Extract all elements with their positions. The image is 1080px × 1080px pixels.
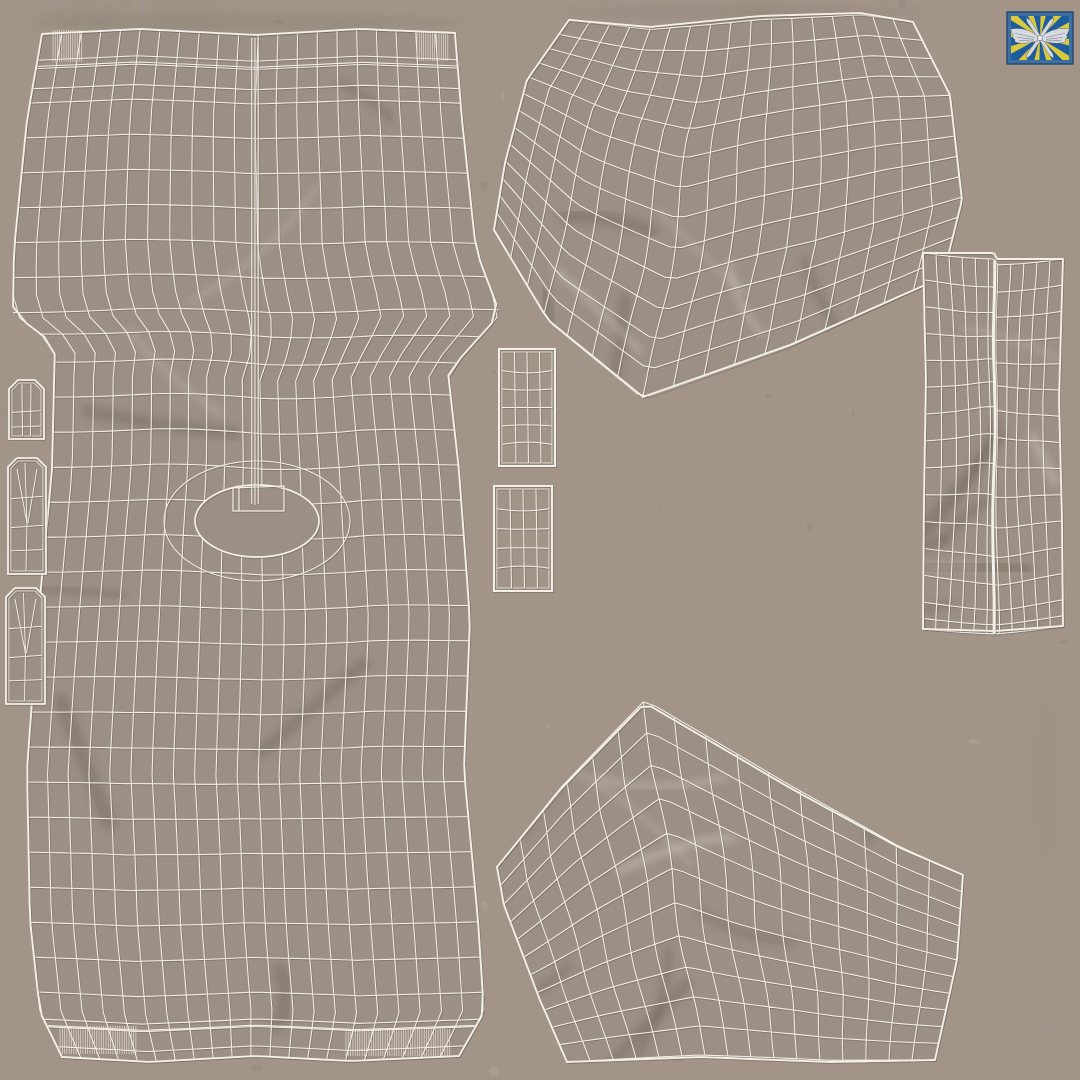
texture-canvas (0, 0, 1080, 1080)
uv-island-belt-loop-long (6, 588, 46, 705)
uv-island-belt-loop-short (9, 380, 45, 440)
uv-island-belt-loop-mid (8, 458, 47, 575)
uv-texture-sheet (0, 0, 1080, 1080)
